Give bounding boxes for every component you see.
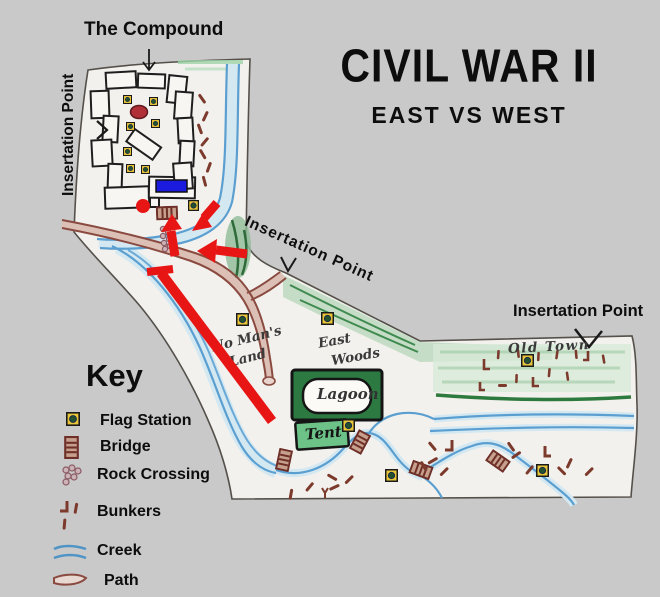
flag-station-icon bbox=[150, 98, 158, 106]
legend-label-bunkers: Bunkers bbox=[97, 503, 161, 521]
legend-path-icon bbox=[54, 575, 86, 585]
blue-marker-rectangle bbox=[156, 180, 187, 192]
legend-icons bbox=[54, 413, 86, 585]
center-insertion-arrow bbox=[281, 257, 296, 271]
lagoon-label: Lagoon bbox=[317, 385, 379, 403]
insertion-point-east-label: Insertation Point bbox=[513, 302, 643, 321]
flag-station-icon bbox=[124, 148, 132, 156]
insertion-point-west-label: Insertation Point bbox=[60, 51, 78, 196]
flag-station-icon bbox=[152, 120, 160, 128]
flag-station-icon bbox=[343, 420, 355, 432]
legend-label-flag-station: Flag Station bbox=[100, 412, 192, 430]
flag-station-icon bbox=[522, 355, 534, 367]
legend-label-bridge: Bridge bbox=[100, 438, 151, 456]
flag-station-icon bbox=[537, 465, 549, 477]
legend-rock-crossing-icon bbox=[63, 465, 81, 485]
legend-label-path: Path bbox=[104, 572, 139, 590]
flag-station-icon bbox=[142, 166, 150, 174]
compound-red-oval bbox=[131, 106, 148, 119]
key-heading: Key bbox=[86, 358, 143, 394]
flag-station-icon bbox=[322, 313, 334, 325]
legend-creek-icon bbox=[54, 546, 86, 558]
flag-station-icon bbox=[127, 165, 135, 173]
map-subtitle: EAST VS WEST bbox=[334, 102, 604, 129]
bridge-icon bbox=[157, 207, 177, 220]
legend-flag-station-icon bbox=[67, 413, 79, 425]
flag-station-icon bbox=[237, 314, 249, 326]
flag-station-icon bbox=[124, 96, 132, 104]
compound-label: The Compound bbox=[84, 19, 223, 41]
civil-war-map-page: CIVIL WAR II EAST VS WEST The Compound I… bbox=[0, 0, 660, 597]
legend-label-creek: Creek bbox=[97, 542, 141, 560]
legend-bunkers-icon bbox=[60, 501, 78, 530]
legend-label-rock-crossing: Rock Crossing bbox=[97, 466, 210, 484]
legend-bridge-icon bbox=[65, 437, 78, 458]
flag-station-icon bbox=[386, 470, 398, 482]
flag-station-icon bbox=[189, 201, 199, 211]
map-title: CIVIL WAR II bbox=[334, 40, 604, 93]
tent-label: Tent bbox=[304, 422, 342, 443]
flag-station-icon bbox=[127, 123, 135, 131]
